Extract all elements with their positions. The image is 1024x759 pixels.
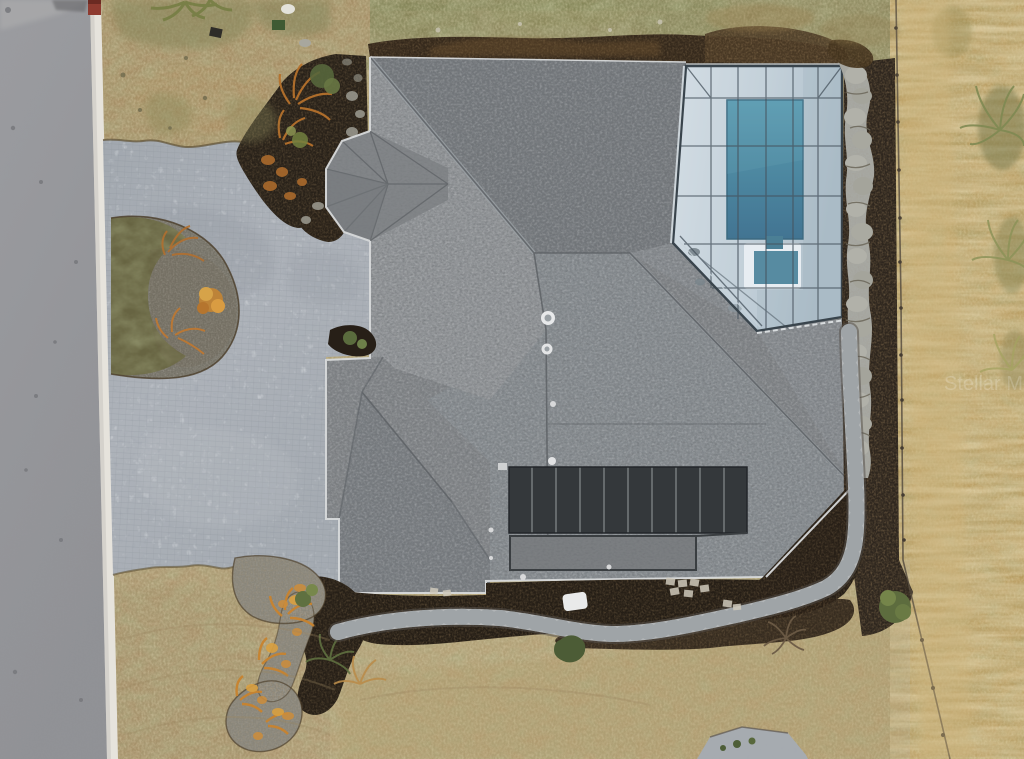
svg-text:Stellar ML: Stellar ML	[944, 373, 1024, 395]
